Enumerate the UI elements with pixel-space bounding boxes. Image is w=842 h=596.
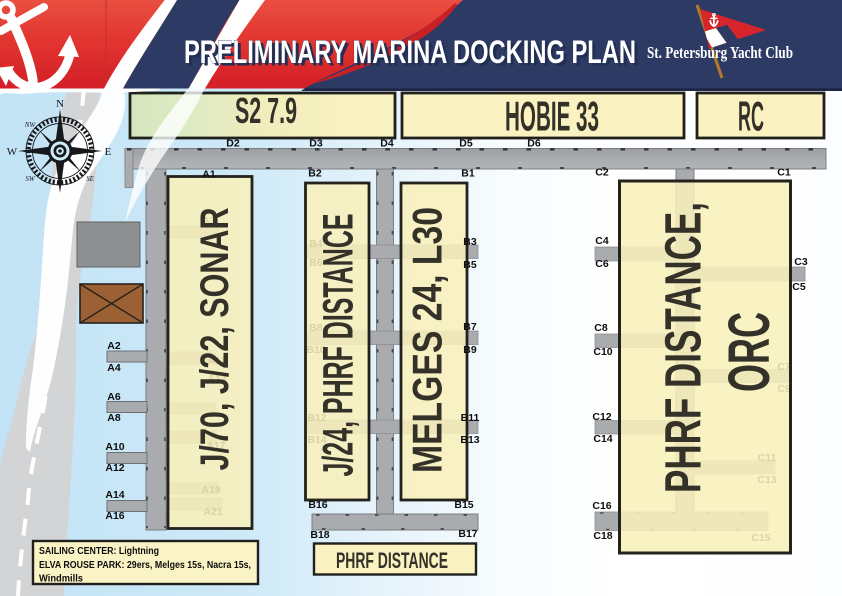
svg-text:C2: C2 [595, 167, 609, 179]
svg-text:D6: D6 [527, 138, 541, 150]
svg-text:B3: B3 [463, 236, 477, 248]
svg-text:C14: C14 [593, 433, 612, 445]
svg-text:PHRF DISTANCE,: PHRF DISTANCE, [655, 202, 712, 493]
svg-text:B2: B2 [308, 168, 322, 180]
svg-text:B18: B18 [310, 529, 329, 541]
svg-text:HOBIE 33: HOBIE 33 [505, 93, 599, 140]
svg-text:B13: B13 [460, 434, 479, 446]
svg-text:D2: D2 [226, 138, 240, 150]
svg-text:PHRF DISTANCE: PHRF DISTANCE [336, 548, 448, 573]
svg-text:B15: B15 [454, 499, 473, 511]
svg-text:B5: B5 [463, 259, 477, 271]
svg-text:J/24, PHRF DISTANCE: J/24, PHRF DISTANCE [315, 214, 363, 477]
svg-text:RC: RC [738, 93, 764, 140]
svg-text:A2: A2 [107, 340, 121, 352]
svg-text:St. Petersburg Yacht Club: St. Petersburg Yacht Club [647, 43, 793, 62]
svg-text:C16: C16 [592, 500, 611, 512]
svg-text:C6: C6 [595, 258, 609, 270]
svg-text:B7: B7 [463, 321, 477, 333]
svg-text:NW: NW [24, 121, 37, 129]
svg-text:ELVA ROUSE PARK: 29ers, Melges: ELVA ROUSE PARK: 29ers, Melges 15s, Nacr… [39, 559, 251, 571]
svg-text:D4: D4 [380, 138, 394, 150]
svg-text:B17: B17 [458, 528, 477, 540]
svg-text:D5: D5 [459, 138, 473, 150]
svg-text:SAILING CENTER: Lightning: SAILING CENTER: Lightning [39, 545, 159, 557]
svg-text:A6: A6 [107, 391, 121, 403]
svg-text:A1: A1 [202, 169, 216, 181]
svg-text:SE: SE [86, 175, 95, 183]
svg-text:C18: C18 [593, 530, 612, 542]
svg-text:B9: B9 [463, 344, 477, 356]
svg-text:C10: C10 [593, 346, 612, 358]
svg-text:A14: A14 [105, 489, 124, 501]
svg-text:C4: C4 [595, 235, 609, 247]
svg-text:C1: C1 [777, 167, 791, 179]
svg-text:A4: A4 [107, 362, 121, 374]
svg-text:Windmills: Windmills [39, 573, 83, 585]
svg-text:E: E [105, 146, 112, 158]
svg-text:A16: A16 [105, 510, 124, 522]
svg-text:N: N [56, 98, 64, 110]
svg-text:W: W [7, 146, 18, 158]
svg-text:B16: B16 [308, 499, 327, 511]
svg-text:A12: A12 [105, 462, 124, 474]
svg-text:D3: D3 [309, 138, 323, 150]
svg-text:SW: SW [25, 175, 36, 183]
svg-text:A8: A8 [107, 412, 121, 424]
svg-text:A10: A10 [105, 441, 124, 453]
svg-text:MELGES 24, L30: MELGES 24, L30 [404, 207, 451, 473]
svg-text:C3: C3 [794, 256, 808, 268]
svg-text:S2 7.9: S2 7.9 [235, 90, 297, 131]
svg-text:C8: C8 [594, 322, 608, 334]
svg-text:B1: B1 [461, 168, 475, 180]
svg-text:C5: C5 [792, 281, 806, 293]
svg-text:B11: B11 [461, 412, 480, 424]
svg-text:ORC: ORC [717, 312, 782, 392]
svg-text:PRELIMINARY MARINA DOCKING PLA: PRELIMINARY MARINA DOCKING PLAN [184, 34, 636, 70]
svg-text:J/70, J/22, SONAR: J/70, J/22, SONAR [193, 207, 237, 470]
svg-text:C12: C12 [592, 411, 611, 423]
